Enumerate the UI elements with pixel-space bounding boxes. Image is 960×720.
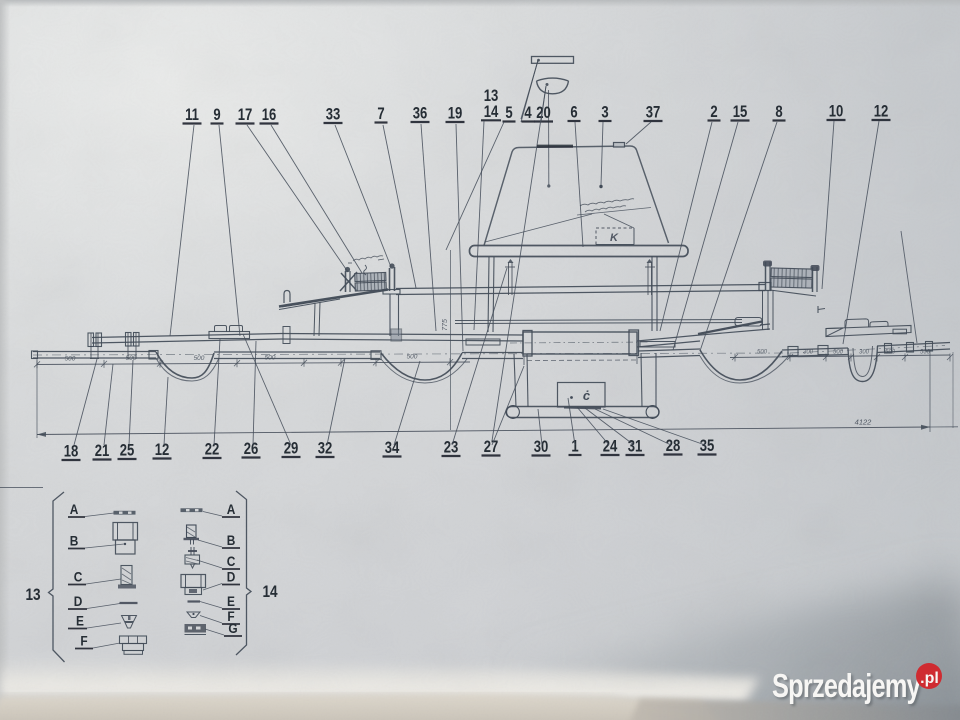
svg-text:33: 33 xyxy=(326,105,341,124)
svg-text:500: 500 xyxy=(920,350,931,356)
svg-text:500: 500 xyxy=(407,354,418,361)
svg-text:B: B xyxy=(70,533,79,549)
svg-text:500: 500 xyxy=(833,350,844,356)
svg-text:17: 17 xyxy=(238,106,253,125)
svg-text:300: 300 xyxy=(803,350,814,356)
svg-text:18: 18 xyxy=(64,442,79,461)
svg-text:B: B xyxy=(227,532,236,548)
svg-text:500: 500 xyxy=(126,355,137,362)
svg-text:ċ: ċ xyxy=(583,388,591,403)
svg-text:5: 5 xyxy=(505,104,512,123)
svg-text:7: 7 xyxy=(377,105,384,124)
svg-text:14: 14 xyxy=(484,103,499,122)
svg-text:32: 32 xyxy=(318,439,333,458)
svg-text:C: C xyxy=(227,553,236,569)
svg-text:31: 31 xyxy=(628,437,643,456)
svg-text:12: 12 xyxy=(155,441,170,460)
svg-text:A: A xyxy=(70,501,79,517)
svg-text:D: D xyxy=(74,593,83,609)
svg-text:29: 29 xyxy=(284,439,299,458)
svg-text:9: 9 xyxy=(213,106,220,125)
svg-text:E: E xyxy=(227,593,235,609)
svg-text:30: 30 xyxy=(534,438,549,457)
svg-text:23: 23 xyxy=(444,438,459,457)
svg-text:19: 19 xyxy=(448,104,463,123)
svg-text:28: 28 xyxy=(666,437,681,456)
svg-text:25: 25 xyxy=(120,441,135,460)
svg-text:4122: 4122 xyxy=(855,418,873,427)
svg-text:8: 8 xyxy=(775,103,782,122)
svg-text:500: 500 xyxy=(757,350,768,356)
svg-text:34: 34 xyxy=(385,439,400,458)
svg-text:26: 26 xyxy=(244,440,259,459)
svg-text:K: K xyxy=(610,232,619,244)
svg-text:37: 37 xyxy=(646,103,661,122)
svg-text:22: 22 xyxy=(205,440,220,459)
svg-text:14: 14 xyxy=(262,583,278,602)
svg-text:A: A xyxy=(227,501,236,517)
svg-text:C: C xyxy=(74,569,83,585)
svg-text:775: 775 xyxy=(442,319,449,331)
svg-text:35: 35 xyxy=(700,437,715,456)
svg-text:.pl: .pl xyxy=(920,670,939,687)
svg-text:10: 10 xyxy=(829,102,844,121)
svg-text:500: 500 xyxy=(265,354,276,361)
svg-text:500: 500 xyxy=(194,355,205,362)
svg-text:13: 13 xyxy=(25,586,40,605)
svg-text:E: E xyxy=(76,613,84,629)
svg-text:36: 36 xyxy=(413,104,428,123)
svg-text:3: 3 xyxy=(601,103,608,122)
svg-text:500: 500 xyxy=(885,350,896,356)
svg-text:Sprzedajemy: Sprzedajemy xyxy=(772,668,921,705)
svg-text:500: 500 xyxy=(65,356,76,363)
svg-text:16: 16 xyxy=(262,106,277,125)
svg-text:21: 21 xyxy=(95,442,110,461)
svg-text:2: 2 xyxy=(710,103,717,122)
svg-text:D: D xyxy=(227,569,236,585)
svg-text:G: G xyxy=(228,620,237,636)
svg-text:F: F xyxy=(80,633,87,649)
svg-text:11: 11 xyxy=(185,106,199,125)
svg-text:6: 6 xyxy=(570,103,577,122)
svg-text:27: 27 xyxy=(484,438,499,457)
svg-text:1: 1 xyxy=(571,437,578,456)
svg-text:12: 12 xyxy=(874,102,889,121)
svg-text:15: 15 xyxy=(733,103,748,122)
svg-text:300: 300 xyxy=(859,350,870,356)
